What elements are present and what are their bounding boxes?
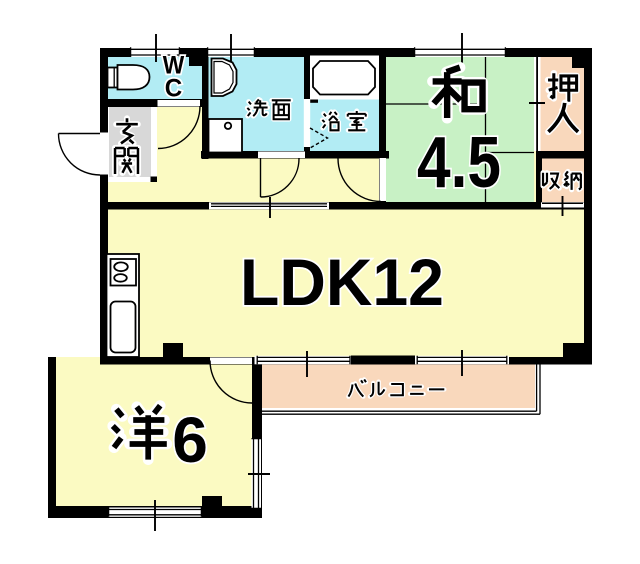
svg-text:C: C: [165, 75, 183, 103]
svg-text:6: 6: [172, 404, 208, 476]
svg-text:LDK12: LDK12: [240, 245, 444, 319]
svg-text:4.5: 4.5: [417, 123, 501, 203]
